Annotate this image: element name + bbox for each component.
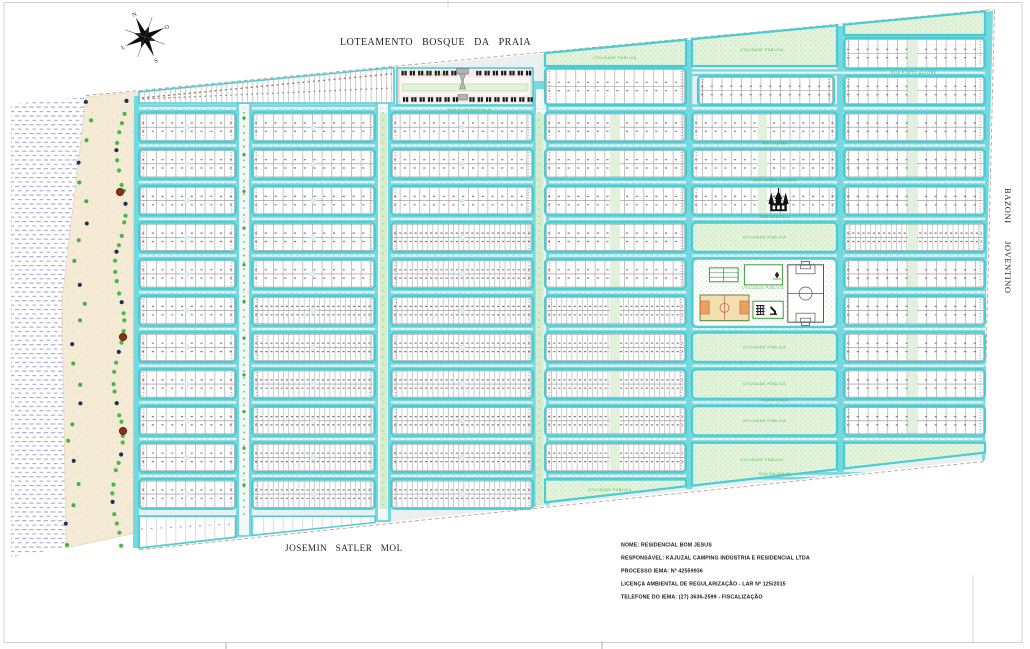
svg-text:UTILIDADE PÚBLICA: UTILIDADE PÚBLICA xyxy=(740,457,783,462)
svg-text:UTILIDADE PÚBLICA: UTILIDADE PÚBLICA xyxy=(740,47,783,52)
svg-text:LOTEAMENTO BOSQUE DA PRA: LOTEAMENTO BOSQUE DA PRAIA xyxy=(340,37,531,48)
svg-text:UTILIDADE PÚBLICA: UTILIDADE PÚBLICA xyxy=(743,234,786,239)
svg-text:RUA FLORIANOPOLIS: RUA FLORIANOPOLIS xyxy=(448,108,492,112)
svg-text:RUA BRASILIA: RUA BRASILIA xyxy=(760,215,789,219)
svg-text:UTILIDADE PÚBLICA: UTILIDADE PÚBLICA xyxy=(743,381,786,386)
svg-text:RUA SALVADOR: RUA SALVADOR xyxy=(759,472,791,476)
svg-text:RUA PORTO ALEGRE: RUA PORTO ALEGRE xyxy=(891,71,937,75)
svg-text:RUA CORMA: RUA CORMA xyxy=(424,73,449,77)
svg-text:BAZONI: BAZONI xyxy=(1003,188,1013,224)
svg-text:RESPONSÁVEL: KAJUZAL CAMPING I: RESPONSÁVEL: KAJUZAL CAMPING INDÚSTRIA E… xyxy=(621,555,810,562)
svg-text:UTILIDADE PÚBLICA: UTILIDADE PÚBLICA xyxy=(588,487,631,492)
svg-text:UTILIDADE PÚBLICA: UTILIDADE PÚBLICA xyxy=(743,344,786,349)
svg-text:UTILIDADE PÚBLICA: UTILIDADE PÚBLICA xyxy=(742,285,784,290)
svg-text:NOME: RESIDENCIAL BOM JESUS: NOME: RESIDENCIAL BOM JESUS xyxy=(621,543,712,549)
svg-text:RUA CURMA: RUA CURMA xyxy=(763,142,788,146)
svg-text:JOVENTINO: JOVENTINO xyxy=(1003,241,1013,294)
svg-text:UTILIDADE PÚBLICA: UTILIDADE PÚBLICA xyxy=(743,418,786,423)
svg-text:RUA VITORIA: RUA VITORIA xyxy=(762,399,789,403)
svg-text:TELEFONE DO IEMA: (27) 3636-25: TELEFONE DO IEMA: (27) 3636-2599 - FISCA… xyxy=(621,594,763,601)
svg-text:PROCESSO IEMA: Nº 42559936: PROCESSO IEMA: Nº 42559936 xyxy=(621,569,703,575)
svg-text:UTILIDADE PÚBLICA: UTILIDADE PÚBLICA xyxy=(593,55,636,60)
svg-text:RUA CAMPO GRANDE: RUA CAMPO GRANDE xyxy=(753,178,797,182)
svg-text:LICENÇA AMBIENTAL DE REGULARIZ: LICENÇA AMBIENTAL DE REGULARIZAÇÃO - LAR… xyxy=(621,581,786,588)
svg-text:JOSEMIN SATLER MOL: JOSEMIN SATLER MOL xyxy=(285,543,403,553)
